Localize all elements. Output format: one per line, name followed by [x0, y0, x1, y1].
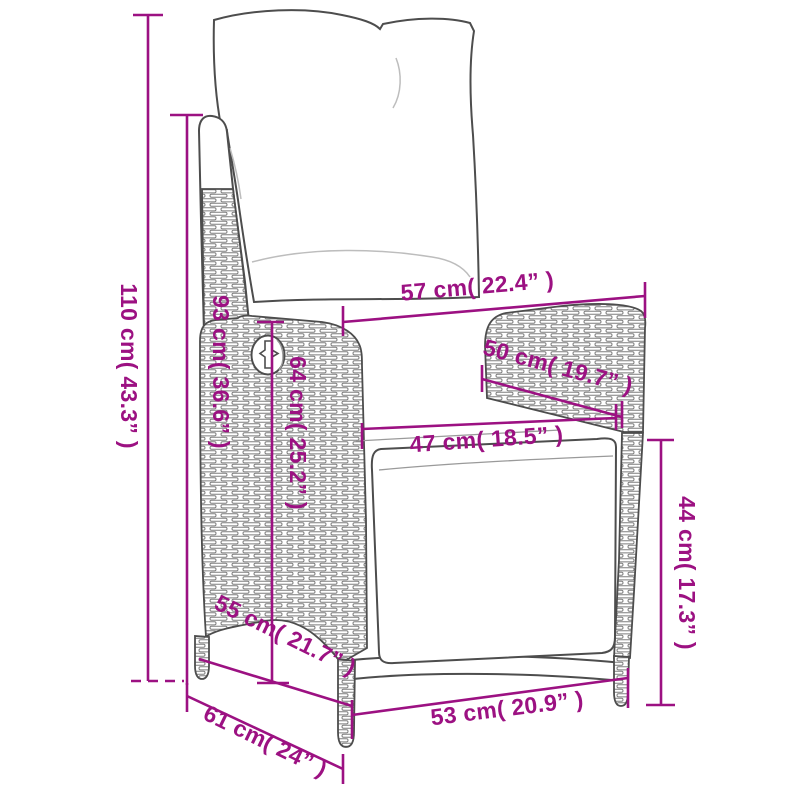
seat-cushion: [372, 438, 616, 663]
dimension-seat-height: 44 cm( 17.3” ): [646, 440, 700, 705]
dimension-label-base-depth: 61 cm( 24” ): [200, 700, 332, 782]
product-dimension-diagram: 110 cm( 43.3” ) 93 cm( 36.6” ) 64 cm( 25…: [0, 0, 800, 800]
dimension-label-total-height: 110 cm( 43.3” ): [116, 283, 142, 449]
diagram-canvas: 110 cm( 43.3” ) 93 cm( 36.6” ) 64 cm( 25…: [0, 0, 800, 800]
right-side-frame: [614, 433, 643, 658]
dimension-label-front-width: 53 cm( 20.9” ): [429, 686, 585, 731]
rear-leg: [195, 636, 209, 679]
dimension-label-seat-height: 44 cm( 17.3” ): [674, 496, 700, 650]
dimension-label-side-height: 64 cm( 25.2” ): [285, 356, 311, 510]
dimension-label-backrest-height: 93 cm( 36.6” ): [208, 295, 234, 449]
dimension-base-depth: 61 cm( 24” ): [187, 683, 343, 784]
